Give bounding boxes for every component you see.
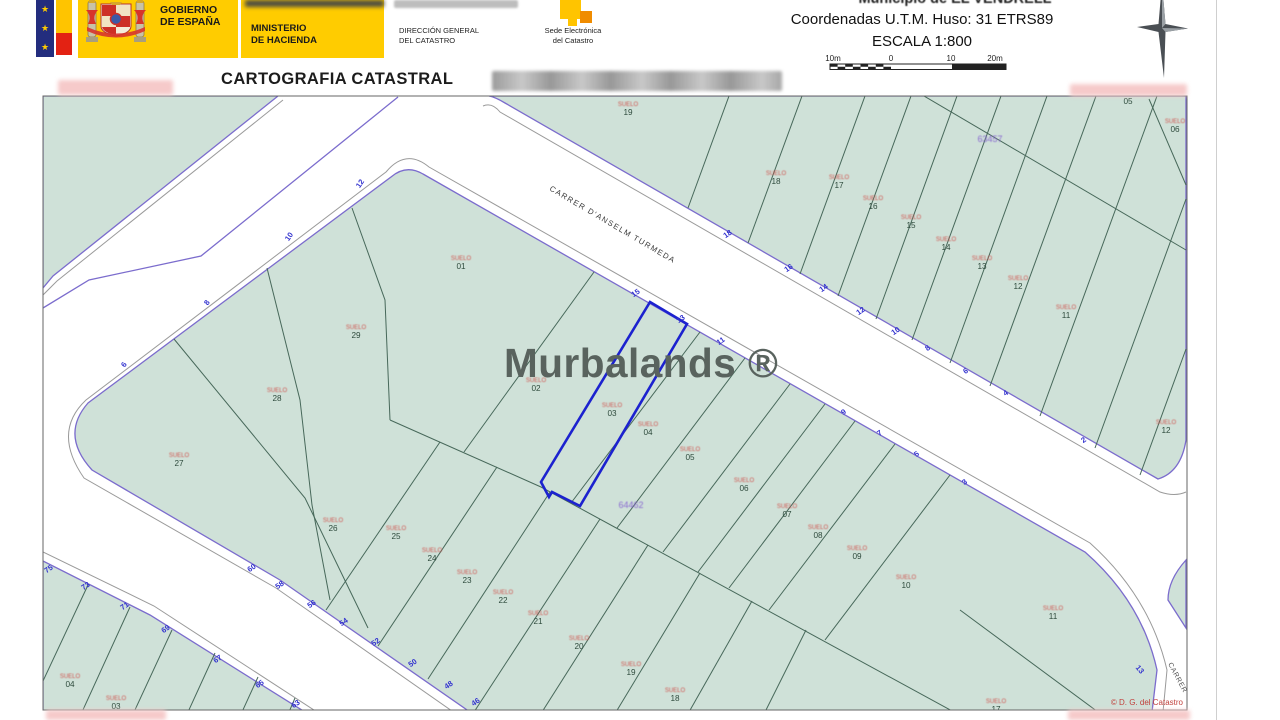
svg-text:07: 07 xyxy=(782,510,792,519)
svg-text:29: 29 xyxy=(351,331,361,340)
svg-text:28: 28 xyxy=(272,394,282,403)
svg-text:17: 17 xyxy=(991,705,1001,714)
svg-text:20m: 20m xyxy=(987,54,1003,63)
svg-text:15: 15 xyxy=(906,221,916,230)
svg-text:10: 10 xyxy=(947,54,956,63)
svg-text:17: 17 xyxy=(834,181,844,190)
svg-text:12: 12 xyxy=(1161,426,1171,435)
svg-text:20: 20 xyxy=(574,642,584,651)
svg-text:24: 24 xyxy=(427,554,437,563)
svg-text:05: 05 xyxy=(1123,97,1133,106)
svg-text:09: 09 xyxy=(852,552,862,561)
svg-text:05: 05 xyxy=(685,453,695,462)
svg-text:16: 16 xyxy=(868,202,878,211)
svg-text:13: 13 xyxy=(977,262,987,271)
svg-text:21: 21 xyxy=(533,617,543,626)
svg-text:0: 0 xyxy=(889,54,894,63)
svg-text:10: 10 xyxy=(901,581,911,590)
svg-text:04: 04 xyxy=(65,680,75,689)
svg-text:11: 11 xyxy=(1062,311,1071,320)
svg-text:04: 04 xyxy=(643,428,653,437)
svg-text:© D. G. del Catastro: © D. G. del Catastro xyxy=(1111,698,1184,707)
svg-text:14: 14 xyxy=(941,243,951,252)
svg-text:27: 27 xyxy=(174,459,184,468)
svg-text:63457: 63457 xyxy=(977,134,1002,144)
svg-text:26: 26 xyxy=(328,524,338,533)
svg-text:18: 18 xyxy=(670,694,680,703)
svg-text:64462: 64462 xyxy=(618,500,643,510)
svg-text:12: 12 xyxy=(1013,282,1023,291)
svg-text:06: 06 xyxy=(1170,125,1180,134)
svg-text:06: 06 xyxy=(739,484,749,493)
svg-text:01: 01 xyxy=(456,262,466,271)
svg-text:10m: 10m xyxy=(825,54,841,63)
svg-text:18: 18 xyxy=(771,177,781,186)
svg-text:22: 22 xyxy=(498,596,508,605)
svg-text:Murbalands ®: Murbalands ® xyxy=(504,340,778,386)
svg-text:23: 23 xyxy=(462,576,472,585)
svg-text:25: 25 xyxy=(391,532,401,541)
svg-text:08: 08 xyxy=(813,531,823,540)
svg-text:19: 19 xyxy=(623,108,633,117)
svg-text:11: 11 xyxy=(1049,612,1058,621)
svg-text:03: 03 xyxy=(607,409,617,418)
svg-text:19: 19 xyxy=(626,668,636,677)
